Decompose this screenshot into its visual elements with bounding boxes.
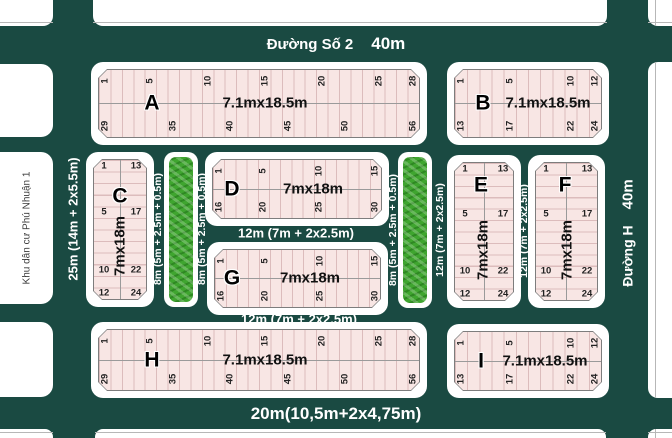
street-bottom-label: 20m(10,5m+2x4,75m) — [0, 398, 672, 429]
lot-number: 1 — [462, 164, 467, 174]
lot-number: 30 — [370, 291, 380, 302]
lot-number: 25 — [374, 76, 384, 87]
lot-number: 10 — [541, 267, 552, 277]
lot-number: 5 — [146, 338, 156, 343]
lot-number: 10 — [203, 76, 213, 87]
block-D-dims: 7mx18m — [283, 182, 343, 197]
block-E-label: E — [474, 175, 488, 196]
street-top-size: 40m — [371, 34, 405, 54]
lot-number: 1 — [456, 78, 466, 83]
block-H: 151015202528293540455056 H 7.1mx18.5m — [91, 322, 427, 398]
lot-number: 20 — [260, 291, 270, 302]
lot-number: 1 — [214, 168, 224, 173]
map-edge-top-right — [648, 0, 672, 26]
lot-number: 15 — [370, 256, 380, 267]
lot-number: 5 — [543, 210, 548, 220]
block-G-label: G — [224, 268, 240, 289]
lot-number: 5 — [259, 168, 269, 173]
block-H-dims: 7.1mx18.5m — [222, 353, 307, 368]
lot-number: 22 — [498, 267, 509, 277]
lot-number: 24 — [582, 290, 593, 300]
lot-number: 5 — [101, 207, 106, 217]
lot-number: 20 — [317, 76, 327, 87]
lot-number: 30 — [371, 202, 381, 213]
lot-number: 28 — [409, 336, 419, 347]
lot-number: 25 — [315, 291, 325, 302]
lot-number: 22 — [131, 265, 142, 275]
lot-number: 40 — [226, 121, 236, 132]
block-I-label: I — [478, 351, 484, 372]
lot-number: 13 — [131, 161, 142, 171]
block-E: 15101213172224 E 7mx18m — [447, 155, 521, 308]
trees-texture — [169, 157, 193, 302]
block-C-label: C — [112, 186, 127, 207]
block-I-dims: 7.1mx18.5m — [502, 354, 587, 369]
lot-number: 22 — [566, 121, 576, 132]
lot-number: 10 — [566, 76, 576, 87]
block-G: 15101516202530 G 7mx18m — [207, 242, 388, 315]
block-A: 151015202528293540455056 A 7.1mx18.5m — [91, 62, 427, 145]
street-right-name: Đường H — [620, 225, 636, 286]
lot-number: 1 — [216, 258, 226, 263]
block-E-dims: 7mx18m — [476, 220, 491, 280]
lot-number: 17 — [505, 121, 515, 132]
lot-number: 28 — [409, 76, 419, 87]
lot-number: 1 — [100, 338, 110, 343]
street-top-name: Đường Số 2 — [267, 36, 354, 53]
lot-number: 10 — [203, 336, 213, 347]
block-C-dims: 7mx18m — [113, 216, 128, 276]
block-B-label: B — [475, 93, 490, 114]
lot-number: 50 — [340, 121, 350, 132]
street-bottom-size: 20m(10,5m+2x4,75m) — [251, 404, 422, 424]
block-H-label: H — [144, 350, 159, 371]
lot-number: 29 — [100, 121, 110, 132]
block-F-dims: 7mx18m — [560, 220, 575, 280]
lot-number: 12 — [590, 338, 600, 349]
lot-number: 5 — [146, 78, 156, 83]
lot-number: 45 — [283, 121, 293, 132]
street-left-label: 25m (14m + 2x5.5m) — [66, 157, 81, 280]
lot-number: 15 — [260, 76, 270, 87]
lot-number: 29 — [100, 374, 110, 385]
map-edge-top-left — [0, 0, 53, 26]
block-A-dims: 7.1mx18.5m — [222, 96, 307, 111]
street-below-d-label: 12m (7m + 2x2.5m) — [238, 226, 354, 241]
lot-number: 10 — [99, 265, 110, 275]
lot-number: 13 — [582, 164, 593, 174]
lot-number: 56 — [409, 121, 419, 132]
lot-number: 16 — [216, 291, 226, 302]
map-edge-bottom — [95, 429, 606, 438]
lot-number: 16 — [214, 202, 224, 213]
lot-number: 22 — [566, 374, 576, 385]
lot-number: 12 — [541, 290, 552, 300]
lot-number: 45 — [283, 374, 293, 385]
lot-number: 13 — [456, 121, 466, 132]
lot-number: 15 — [371, 166, 381, 177]
green-strip-1 — [164, 152, 198, 307]
block-C: 15101213172224 C 7mx18m — [86, 152, 154, 307]
map-edge-bottom-right — [648, 429, 672, 438]
lot-number: 50 — [340, 374, 350, 385]
lot-number: 1 — [100, 78, 110, 83]
lot-number: 22 — [582, 267, 593, 277]
block-F-label: F — [559, 175, 572, 196]
green-strip-2 — [398, 152, 432, 308]
street-right-size: 40m — [620, 179, 637, 209]
lot-number: 17 — [582, 210, 593, 220]
map-edge-bottom-left — [0, 429, 53, 438]
neighborhood-label: Khu dân cư Phú Nhuận 1 — [21, 172, 32, 285]
block-D-label: D — [224, 179, 239, 200]
lot-number: 17 — [498, 210, 509, 220]
lot-number: 20 — [259, 202, 269, 213]
map-edge-right — [648, 62, 672, 398]
lot-number: 5 — [260, 258, 270, 263]
lot-number: 40 — [226, 374, 236, 385]
lot-number: 25 — [315, 202, 325, 213]
lot-number: 10 — [315, 166, 325, 177]
street-right-label: Đường H 40m — [620, 179, 637, 286]
lot-number: 17 — [505, 374, 515, 385]
lot-number: 1 — [456, 340, 466, 345]
block-F: 15101213172224 F 7mx18m — [528, 155, 605, 308]
block-B-dims: 7.1mx18.5m — [505, 96, 590, 111]
adjacent-block-lower — [0, 322, 53, 397]
trees-texture — [403, 157, 427, 303]
lot-number: 56 — [409, 374, 419, 385]
adjacent-block-neighborhood: Khu dân cư Phú Nhuận 1 — [0, 152, 53, 304]
lot-number: 12 — [590, 76, 600, 87]
adjacent-block-upper — [0, 64, 53, 137]
block-A-label: A — [144, 93, 159, 114]
block-D: 15101516202530 D 7mx18m — [205, 152, 389, 226]
lot-number: 13 — [456, 374, 466, 385]
map-edge-top — [93, 0, 607, 26]
lot-number: 10 — [315, 256, 325, 267]
lot-number: 5 — [505, 340, 515, 345]
block-B: 15101213172224 B 7.1mx18.5m — [447, 62, 609, 145]
lot-number: 20 — [317, 336, 327, 347]
lot-number: 5 — [462, 210, 467, 220]
lot-number: 13 — [498, 164, 509, 174]
lot-number: 24 — [498, 290, 509, 300]
land-plot-map: Khu dân cư Phú Nhuận 1 Đường Số 2 40m 20… — [0, 0, 672, 438]
lot-number: 24 — [590, 121, 600, 132]
lot-number: 17 — [131, 207, 142, 217]
lot-number: 12 — [460, 290, 471, 300]
lot-number: 24 — [590, 374, 600, 385]
lot-number: 24 — [131, 288, 142, 298]
street-top-label: Đường Số 2 40m — [0, 26, 672, 62]
lot-number: 35 — [169, 121, 179, 132]
lot-number: 1 — [101, 161, 106, 171]
block-I: 15101213172224 I 7.1mx18.5m — [447, 324, 609, 398]
lot-number: 25 — [374, 336, 384, 347]
lot-number: 15 — [260, 336, 270, 347]
lot-number: 5 — [505, 78, 515, 83]
lot-number: 10 — [566, 338, 576, 349]
block-G-dims: 7mx18m — [280, 271, 340, 286]
lot-number: 35 — [169, 374, 179, 385]
lot-number: 10 — [460, 267, 471, 277]
lot-number: 1 — [543, 164, 548, 174]
strip2-right-label: 12m (7m + 2x2.5m) — [434, 183, 446, 277]
lot-number: 12 — [99, 288, 110, 298]
